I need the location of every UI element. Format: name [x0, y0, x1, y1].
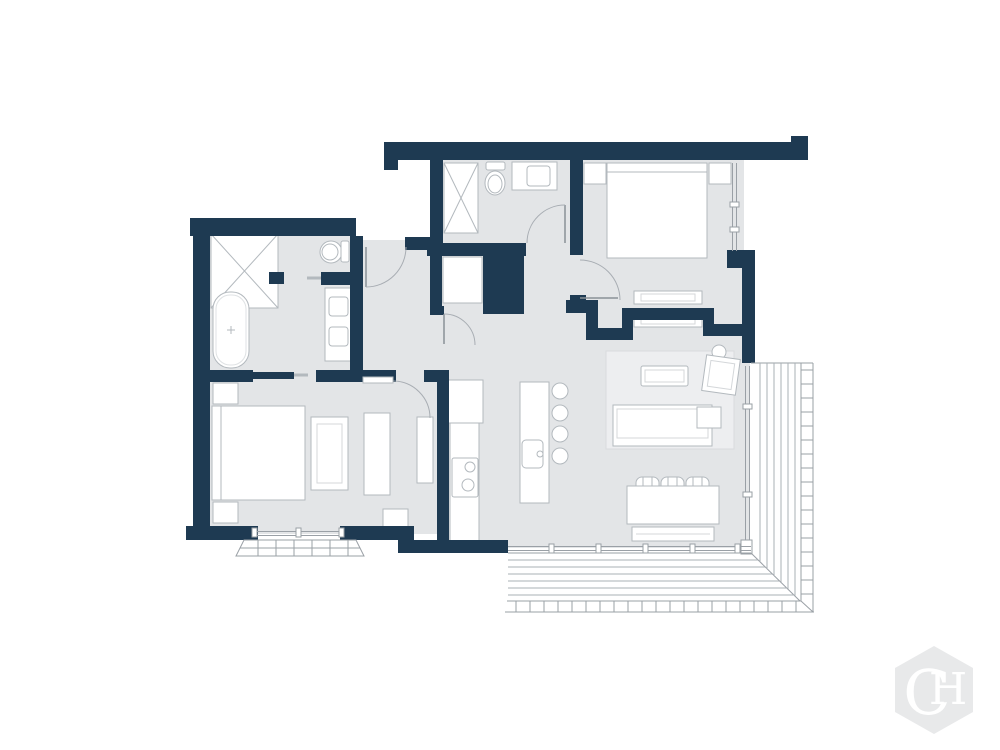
coffee-table	[641, 366, 688, 386]
vanity-1-sink-a	[329, 297, 348, 316]
deck-rail-posts-bottom	[516, 601, 796, 612]
wall-bottom-kitchen	[398, 540, 508, 553]
bar-stool-4	[552, 448, 568, 464]
wall-closet-hinge	[430, 306, 444, 315]
deck-rail-right	[801, 363, 813, 612]
floor-plan-page: CH	[0, 0, 1000, 750]
window-living-bottom-mullion-3	[643, 544, 648, 553]
toilet-1-tank	[341, 241, 349, 262]
toilet-2-tank	[486, 162, 505, 170]
bed-2	[607, 163, 707, 258]
bed-1	[212, 406, 305, 500]
wall-kitchen-vertical	[437, 370, 449, 545]
dining-table	[627, 486, 719, 524]
logo-monogram-h: H	[929, 664, 967, 715]
wall-bed1-top-a	[193, 370, 253, 382]
wall-right	[742, 250, 755, 363]
dresser	[364, 413, 390, 495]
wall-bath2-left	[430, 156, 443, 252]
fridge	[447, 380, 483, 423]
wall-bath1-top	[190, 218, 356, 236]
deck-rail-corner	[801, 601, 813, 612]
utility-shaft	[483, 252, 524, 314]
nightstand-2-left	[584, 163, 606, 184]
layer-logo: CH	[895, 646, 973, 734]
vanity-1-sink-b	[329, 327, 348, 346]
wall-bottom-left-a	[186, 526, 258, 540]
wall-top-right-tab	[791, 136, 808, 160]
window-bed1-cap-left	[252, 528, 257, 537]
window-living-bottom-mullion-4	[690, 544, 695, 553]
nightstand-1-bottom	[213, 502, 238, 523]
window-living-bottom-mullion-2	[596, 544, 601, 553]
window-bed2-mullion-2	[730, 227, 739, 232]
bed1-door-leaf	[363, 377, 393, 383]
wall-bath1-right	[350, 236, 363, 374]
window-living-bottom-mullion-5	[735, 544, 740, 553]
side-table	[383, 509, 408, 527]
nightstand-1-top	[213, 383, 238, 404]
floor-plan-canvas: CH	[0, 0, 1000, 750]
sofa-chaise	[697, 407, 721, 428]
deck-miter	[751, 553, 800, 601]
window-bed2-mullion-1	[730, 202, 739, 207]
island-sink	[522, 440, 543, 468]
pocket-door-bath1	[321, 272, 352, 285]
window-bed1-mullion	[296, 528, 301, 537]
media-wall-g	[703, 324, 745, 336]
wall-bed2-left	[570, 156, 583, 255]
console-bedroom-2	[634, 291, 702, 304]
wall-bottom-left-b	[340, 526, 414, 540]
vanity-2-sink	[527, 166, 550, 186]
window-living-bottom-mullion-1	[549, 544, 554, 553]
wall-closet-left	[430, 256, 442, 306]
wardrobe	[417, 417, 433, 483]
wall-top	[388, 142, 808, 160]
armchair	[702, 355, 741, 395]
wall-right-stub	[727, 250, 742, 268]
window-living-right-mullion-1	[743, 404, 752, 409]
wall-top-left-stub	[384, 142, 398, 170]
deck-planks-horizontal	[508, 560, 794, 595]
bar-stool-3	[552, 426, 568, 442]
window-living-right-mullion-2	[743, 492, 752, 497]
media-wall-e	[622, 308, 714, 320]
pocket-door-bed1	[246, 372, 294, 379]
window-bed1-cap-right	[339, 528, 344, 537]
bar-stool-1	[552, 383, 568, 399]
bar-stool-2	[552, 405, 568, 421]
deck-rail-posts-right	[801, 370, 813, 594]
wall-shower-stub	[269, 272, 284, 284]
hall-closet	[443, 257, 482, 303]
deck-planks-vertical	[760, 363, 795, 596]
nightstand-2-right	[709, 163, 731, 184]
